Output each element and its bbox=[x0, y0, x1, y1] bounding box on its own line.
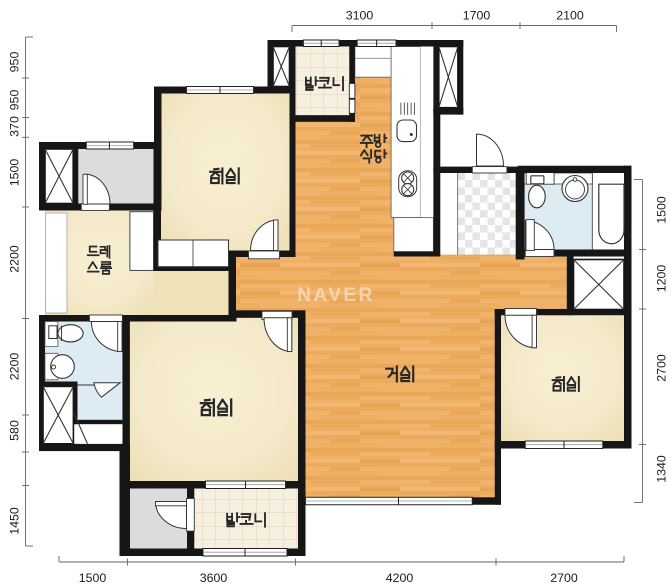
svg-text:2200: 2200 bbox=[8, 245, 22, 273]
svg-text:370: 370 bbox=[8, 116, 22, 137]
svg-text:950: 950 bbox=[8, 52, 22, 73]
svg-text:3100: 3100 bbox=[346, 9, 374, 23]
svg-text:1450: 1450 bbox=[8, 507, 22, 535]
svg-text:4200: 4200 bbox=[386, 571, 414, 585]
svg-text:NAVER: NAVER bbox=[297, 285, 375, 306]
svg-text:2200: 2200 bbox=[8, 353, 22, 381]
svg-text:1340: 1340 bbox=[655, 455, 669, 483]
svg-text:1500: 1500 bbox=[655, 196, 669, 224]
svg-text:1200: 1200 bbox=[655, 265, 669, 293]
svg-text:2100: 2100 bbox=[556, 9, 584, 23]
svg-text:1700: 1700 bbox=[463, 9, 491, 23]
svg-text:1500: 1500 bbox=[8, 159, 22, 187]
svg-text:2700: 2700 bbox=[655, 354, 669, 382]
svg-text:3600: 3600 bbox=[200, 571, 228, 585]
svg-text:950: 950 bbox=[8, 90, 22, 111]
svg-text:1500: 1500 bbox=[79, 571, 107, 585]
svg-text:580: 580 bbox=[8, 420, 22, 441]
svg-text:2700: 2700 bbox=[550, 571, 578, 585]
